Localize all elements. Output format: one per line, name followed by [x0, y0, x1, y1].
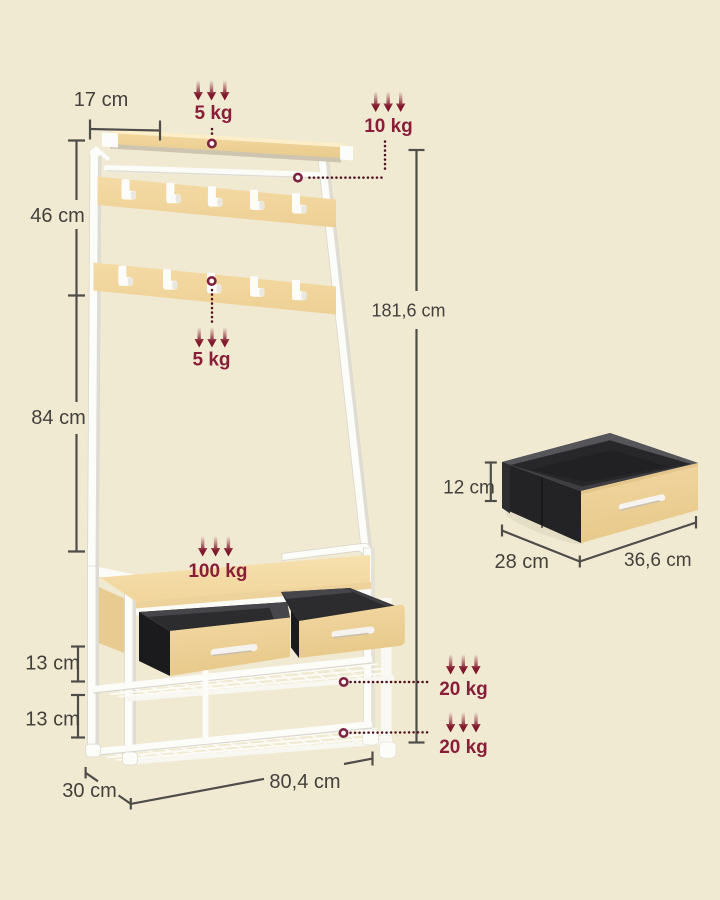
svg-text:5 kg: 5 kg — [194, 103, 232, 124]
svg-text:100 kg: 100 kg — [188, 561, 247, 582]
svg-text:36,6 cm: 36,6 cm — [624, 550, 692, 571]
svg-text:17 cm: 17 cm — [74, 89, 128, 111]
svg-text:13 cm: 13 cm — [25, 709, 79, 731]
svg-text:80,4 cm: 80,4 cm — [269, 771, 340, 793]
svg-text:20 kg: 20 kg — [439, 737, 488, 758]
svg-text:181,6 cm: 181,6 cm — [371, 301, 445, 321]
svg-text:10 kg: 10 kg — [364, 116, 413, 137]
svg-text:28 cm: 28 cm — [494, 551, 548, 573]
svg-text:20 kg: 20 kg — [439, 679, 488, 700]
svg-text:12 cm: 12 cm — [443, 478, 495, 499]
svg-text:84 cm: 84 cm — [31, 407, 85, 429]
svg-text:46 cm: 46 cm — [30, 205, 84, 227]
svg-text:5 kg: 5 kg — [192, 350, 230, 371]
svg-text:13 cm: 13 cm — [25, 653, 79, 675]
svg-text:30 cm: 30 cm — [62, 780, 116, 802]
